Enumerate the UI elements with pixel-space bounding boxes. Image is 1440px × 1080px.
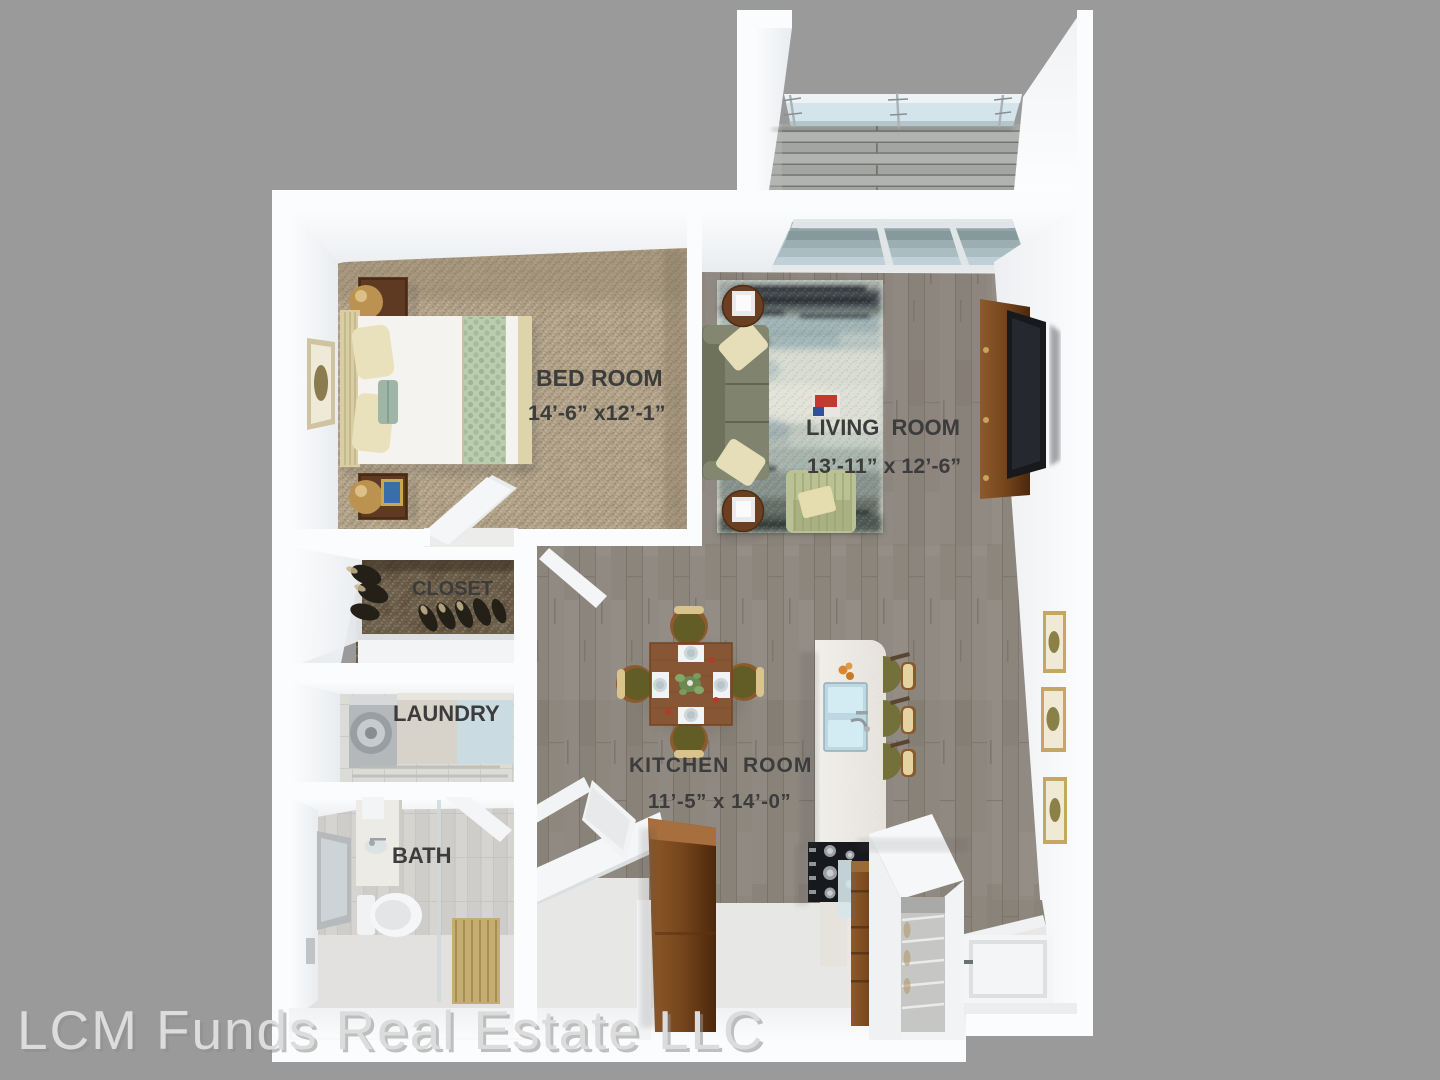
svg-text:14’-6” x12’-1”: 14’-6” x12’-1”	[528, 401, 665, 425]
svg-text:LIVING ROOM: LIVING ROOM	[806, 415, 960, 440]
svg-text:CLOSET: CLOSET	[412, 578, 493, 600]
svg-text:BATH: BATH	[392, 843, 451, 868]
svg-text:BED ROOM: BED ROOM	[536, 365, 663, 391]
svg-text:LCM Funds Real Estate LLC: LCM Funds Real Estate LLC	[17, 999, 765, 1061]
svg-text:13’-11” x 12’-6”: 13’-11” x 12’-6”	[807, 454, 961, 478]
svg-text:KITCHEN ROOM: KITCHEN ROOM	[629, 754, 812, 777]
svg-text:11’-5” x 14’-0”: 11’-5” x 14’-0”	[648, 790, 791, 813]
svg-text:LAUNDRY: LAUNDRY	[393, 701, 500, 726]
